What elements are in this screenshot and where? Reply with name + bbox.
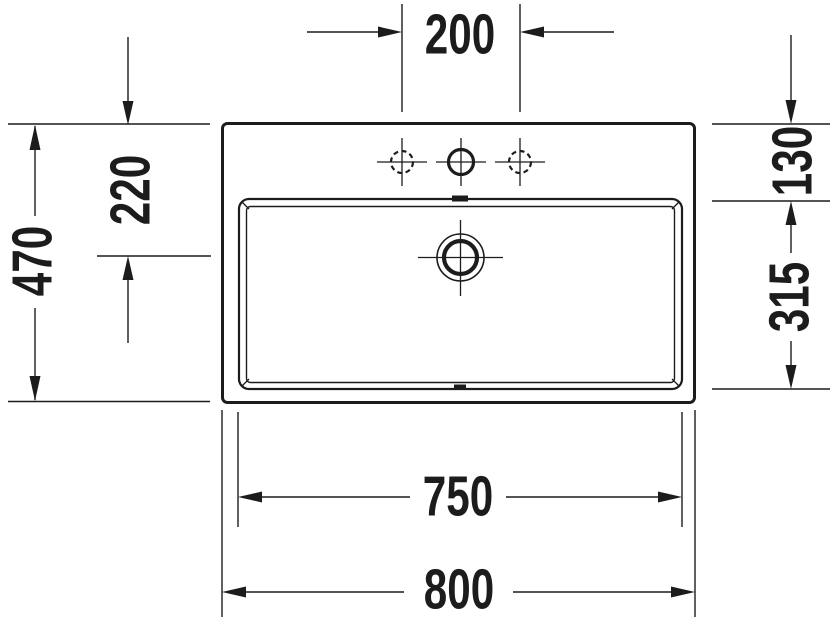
dim-label-750: 750	[423, 469, 493, 526]
drain-icon	[418, 220, 503, 296]
washbasin-outer-outline	[223, 124, 695, 403]
overflow-notch	[452, 196, 468, 202]
bottom-notch	[454, 385, 466, 390]
dim-label-130: 130	[765, 126, 822, 196]
drawing-canvas: 200 470 220 130 315 750 800	[0, 0, 834, 626]
dim-label-200: 200	[425, 7, 495, 64]
faucet-hole-center-icon	[436, 138, 486, 186]
dim-label-470: 470	[5, 226, 62, 296]
faucet-hole-left-icon	[377, 138, 427, 186]
dim-label-220: 220	[103, 155, 160, 225]
dim-label-800: 800	[424, 562, 494, 619]
faucet-hole-right-icon	[495, 138, 545, 186]
dim-label-315: 315	[762, 262, 819, 332]
washbasin-technical-drawing	[0, 0, 834, 626]
